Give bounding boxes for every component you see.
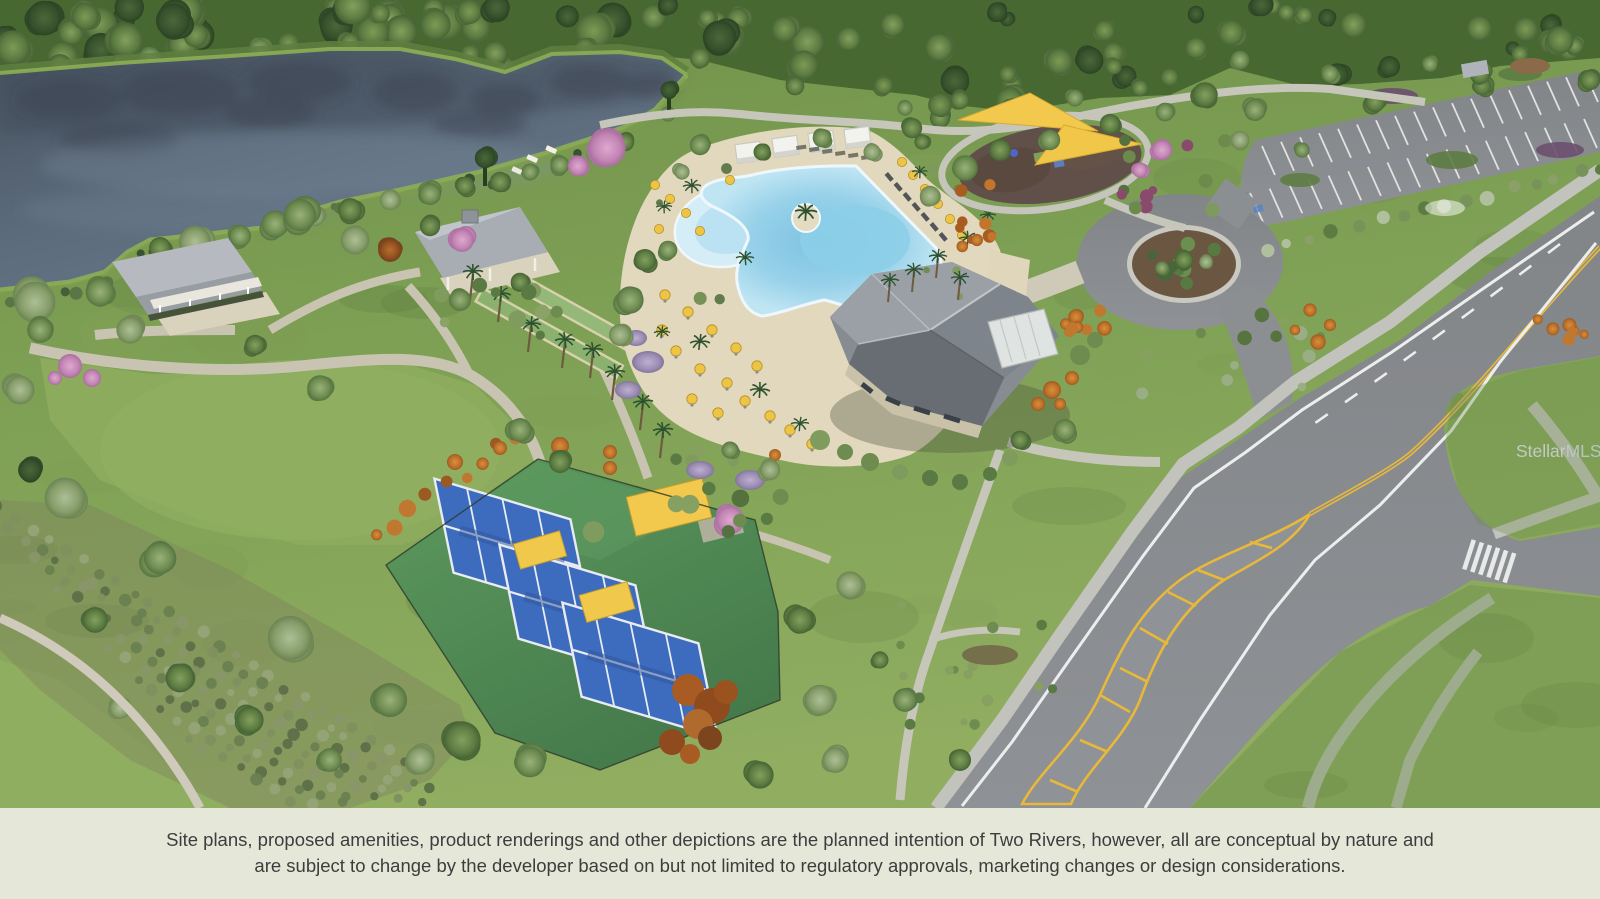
svg-text:StellarMLS: StellarMLS xyxy=(1516,441,1600,461)
